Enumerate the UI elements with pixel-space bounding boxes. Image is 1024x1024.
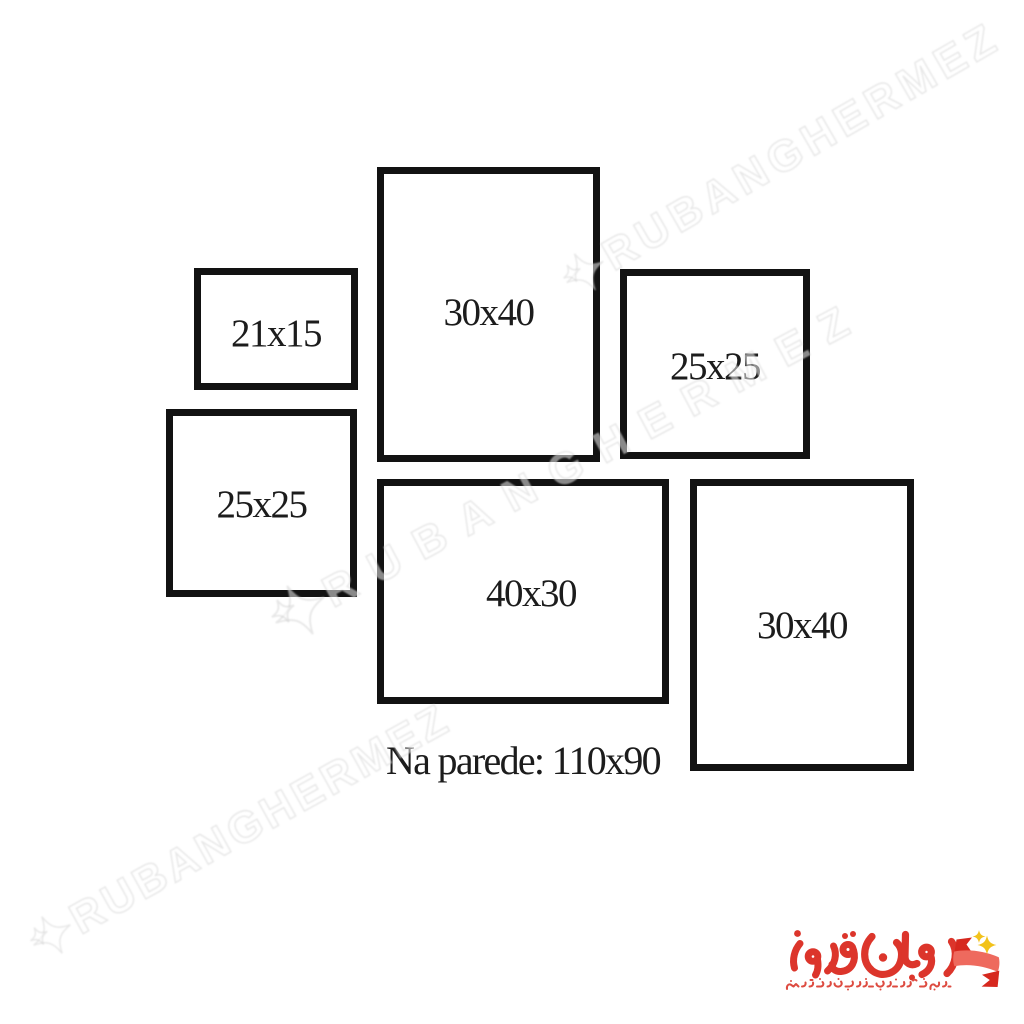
svg-text:RUBANGHERMEZ: RUBANGHERMEZ: [62, 694, 459, 944]
svg-text:RUBANGHERMEZ: RUBANGHERMEZ: [594, 12, 1009, 280]
